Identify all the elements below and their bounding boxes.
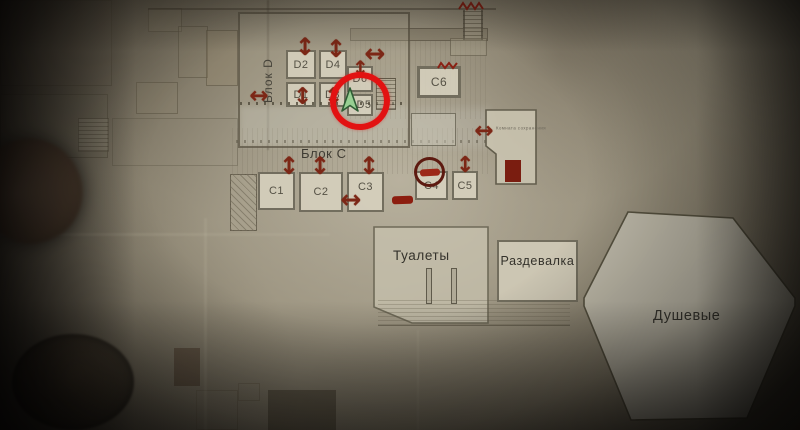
changing-room: Раздевалка (497, 240, 578, 302)
left-stairs (78, 118, 109, 152)
left-building-room (0, 0, 112, 86)
stairs-left-of-c1 (230, 174, 257, 231)
top-corridor-room (450, 38, 487, 56)
left-building-room (136, 82, 178, 114)
save-room-label: Комната сохранения (496, 126, 532, 131)
door-arrow-d1: ↕ (293, 84, 309, 110)
door-arrow-d4: ↕ (326, 36, 342, 62)
left-building-room (206, 30, 238, 86)
door-arrow-block-d-northeast: ↔ (361, 42, 389, 66)
left-building-room (178, 26, 208, 78)
paper-crease (204, 218, 207, 430)
toilets-label: Туалеты (393, 248, 450, 263)
room-c2-label: C2 (313, 186, 328, 198)
showers-label: Душевые (653, 308, 720, 324)
blocked-passage-bar (392, 196, 413, 205)
bottom-structure (268, 390, 336, 430)
door-arrow-save-room: ↔ (471, 120, 497, 142)
room-c6: C6 (417, 66, 461, 98)
blocked-door-bar (420, 168, 440, 176)
bottom-structure (196, 390, 238, 430)
door-arrow-d2: ↕ (295, 34, 311, 60)
left-building-room (148, 8, 182, 32)
bottom-structure (238, 383, 260, 401)
door-arrow-c5: ↕ (456, 153, 472, 179)
room-c1-label: C1 (269, 185, 284, 197)
door-arrow-c3: ↕ (359, 152, 375, 180)
save-point-marker (505, 160, 521, 182)
top-corridor (463, 10, 483, 40)
game-map-screen: Блок D D2 D4 D1 D3 D6 D5 C6 Комната сохр… (0, 0, 800, 430)
room-c5-label: C5 (457, 180, 472, 192)
room-c6-label: C6 (431, 75, 447, 89)
map-top-edge (148, 8, 496, 10)
bottom-structure (174, 348, 200, 386)
broken-lock-zigzag-top (458, 1, 484, 11)
broken-lock-zigzag-c6 (437, 61, 459, 70)
changing-room-label: Раздевалка (501, 254, 575, 268)
paper-crease (417, 330, 419, 430)
left-corridor (112, 118, 238, 166)
room-below-c6 (411, 113, 456, 146)
walkway-hatch-band (378, 299, 570, 326)
door-arrow-c3-south: ↔ (337, 188, 365, 212)
door-arrow-block-d-west: ↔ (246, 84, 272, 108)
map-emblem-drawing (12, 334, 134, 430)
door-arrow-c1: ↕ (279, 152, 295, 180)
door-arrow-c2: ↕ (310, 152, 326, 180)
